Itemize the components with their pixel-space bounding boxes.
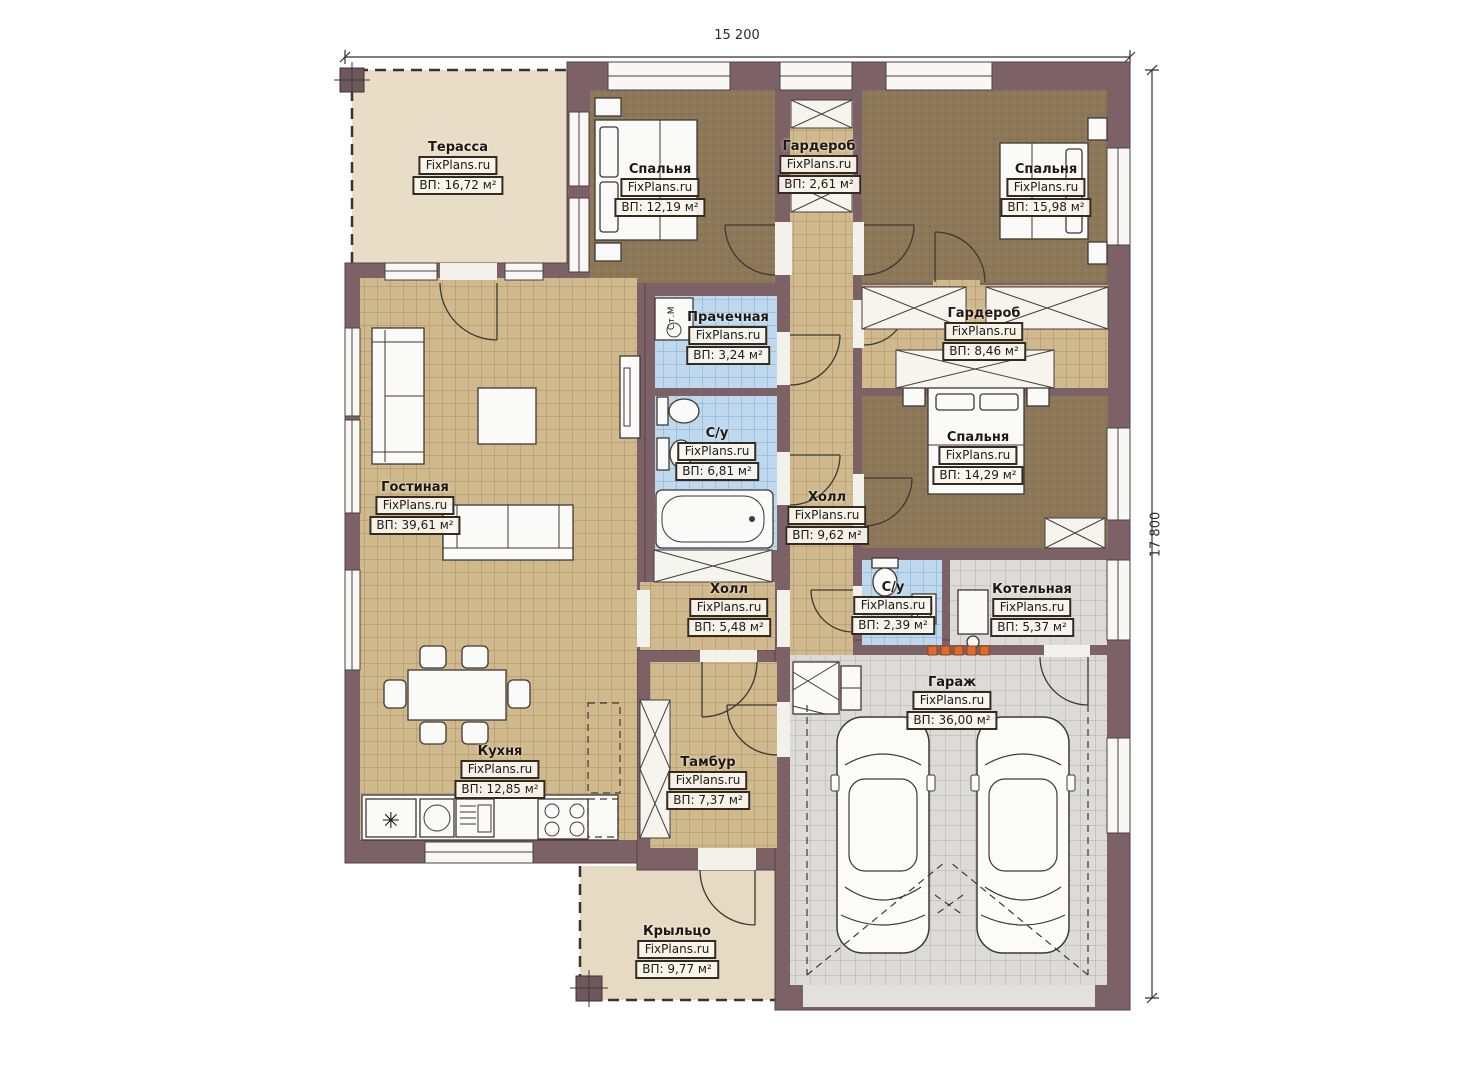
room-area: ВП: 5,48 м² (687, 618, 771, 637)
room-area: ВП: 12,19 м² (614, 198, 705, 217)
sofa-icon (443, 505, 573, 560)
dimension-width-label: 15 200 (687, 28, 787, 43)
brand-watermark: FixPlans.ru (780, 155, 859, 174)
brand-watermark: FixPlans.ru (621, 178, 700, 197)
brand-watermark: FixPlans.ru (678, 442, 757, 461)
fridge-symbol: ✳ (382, 809, 400, 834)
floor-hall1 (790, 213, 853, 655)
bathtub-icon (656, 490, 773, 548)
brand-watermark: FixPlans.ru (669, 771, 748, 790)
washing-machine-label: Ст.М (667, 299, 679, 337)
room-label-bedroom2: Спальня FixPlans.ru ВП: 15,98 м² (1000, 162, 1091, 217)
room-label-living: Гостиная FixPlans.ru ВП: 39,61 м² (369, 480, 460, 535)
heater-dots (928, 646, 989, 655)
room-label-vestibule: Тамбур FixPlans.ru ВП: 7,37 м² (666, 755, 750, 810)
brand-watermark: FixPlans.ru (854, 596, 933, 615)
room-label-wardrobe1: Гардероб FixPlans.ru ВП: 2,61 м² (777, 139, 861, 194)
brand-watermark: FixPlans.ru (1007, 178, 1086, 197)
floor-plan: ✳ (0, 0, 1473, 1080)
room-label-wardrobe2: Гардероб FixPlans.ru ВП: 8,46 м² (942, 306, 1026, 361)
room-area: ВП: 9,77 м² (635, 960, 719, 979)
dimension-height-label: 17 800 (1149, 485, 1164, 585)
room-label-bedroom3: Спальня FixPlans.ru ВП: 14,29 м² (932, 430, 1023, 485)
room-area: ВП: 14,29 м² (932, 466, 1023, 485)
brand-watermark: FixPlans.ru (939, 446, 1018, 465)
room-label-bath2: С/у FixPlans.ru ВП: 2,39 м² (851, 580, 935, 635)
brand-watermark: FixPlans.ru (788, 506, 867, 525)
room-area: ВП: 16,72 м² (412, 176, 503, 195)
brand-watermark: FixPlans.ru (376, 496, 455, 515)
brand-watermark: FixPlans.ru (638, 940, 717, 959)
room-area: ВП: 5,37 м² (990, 618, 1074, 637)
room-label-porch: Крыльцо FixPlans.ru ВП: 9,77 м² (635, 924, 719, 979)
coffee-table-icon (478, 388, 536, 444)
brand-watermark: FixPlans.ru (419, 156, 498, 175)
brand-watermark: FixPlans.ru (689, 326, 768, 345)
room-area: ВП: 7,37 м² (666, 791, 750, 810)
room-label-kitchen: Кухня FixPlans.ru ВП: 12,85 м² (454, 744, 545, 799)
sofa-icon (372, 328, 424, 464)
tv-stand-icon (620, 356, 640, 438)
room-label-hall2: Холл FixPlans.ru ВП: 5,48 м² (687, 582, 771, 637)
room-label-boiler: Котельная FixPlans.ru ВП: 5,37 м² (990, 582, 1074, 637)
room-area: ВП: 12,85 м² (454, 780, 545, 799)
toilet-icon (657, 397, 699, 425)
room-area: ВП: 2,39 м² (851, 616, 935, 635)
room-label-terrace: Терасса FixPlans.ru ВП: 16,72 м² (412, 140, 503, 195)
room-area: ВП: 15,98 м² (1000, 198, 1091, 217)
room-area: ВП: 2,61 м² (777, 175, 861, 194)
car-icon (831, 717, 935, 953)
room-label-laundry: Прачечная FixPlans.ru ВП: 3,24 м² (686, 310, 770, 365)
room-area: ВП: 6,81 м² (675, 462, 759, 481)
room-label-garage: Гараж FixPlans.ru ВП: 36,00 м² (906, 675, 997, 730)
room-area: ВП: 36,00 м² (906, 711, 997, 730)
room-label-hall1: Холл FixPlans.ru ВП: 9,62 м² (785, 490, 869, 545)
brand-watermark: FixPlans.ru (461, 760, 540, 779)
room-area: ВП: 39,61 м² (369, 516, 460, 535)
garage-apron (803, 985, 1095, 1007)
garage-equipment-icon (793, 662, 861, 714)
room-area: ВП: 3,24 м² (686, 346, 770, 365)
car-icon (971, 717, 1075, 953)
brand-watermark: FixPlans.ru (945, 322, 1024, 341)
room-label-bedroom1: Спальня FixPlans.ru ВП: 12,19 м² (614, 162, 705, 217)
room-area: ВП: 8,46 м² (942, 342, 1026, 361)
brand-watermark: FixPlans.ru (690, 598, 769, 617)
brand-watermark: FixPlans.ru (993, 598, 1072, 617)
room-label-bath1: С/у FixPlans.ru ВП: 6,81 м² (675, 426, 759, 481)
room-area: ВП: 9,62 м² (785, 526, 869, 545)
floor-plan-drawing: ✳ (0, 0, 1473, 1080)
brand-watermark: FixPlans.ru (913, 691, 992, 710)
